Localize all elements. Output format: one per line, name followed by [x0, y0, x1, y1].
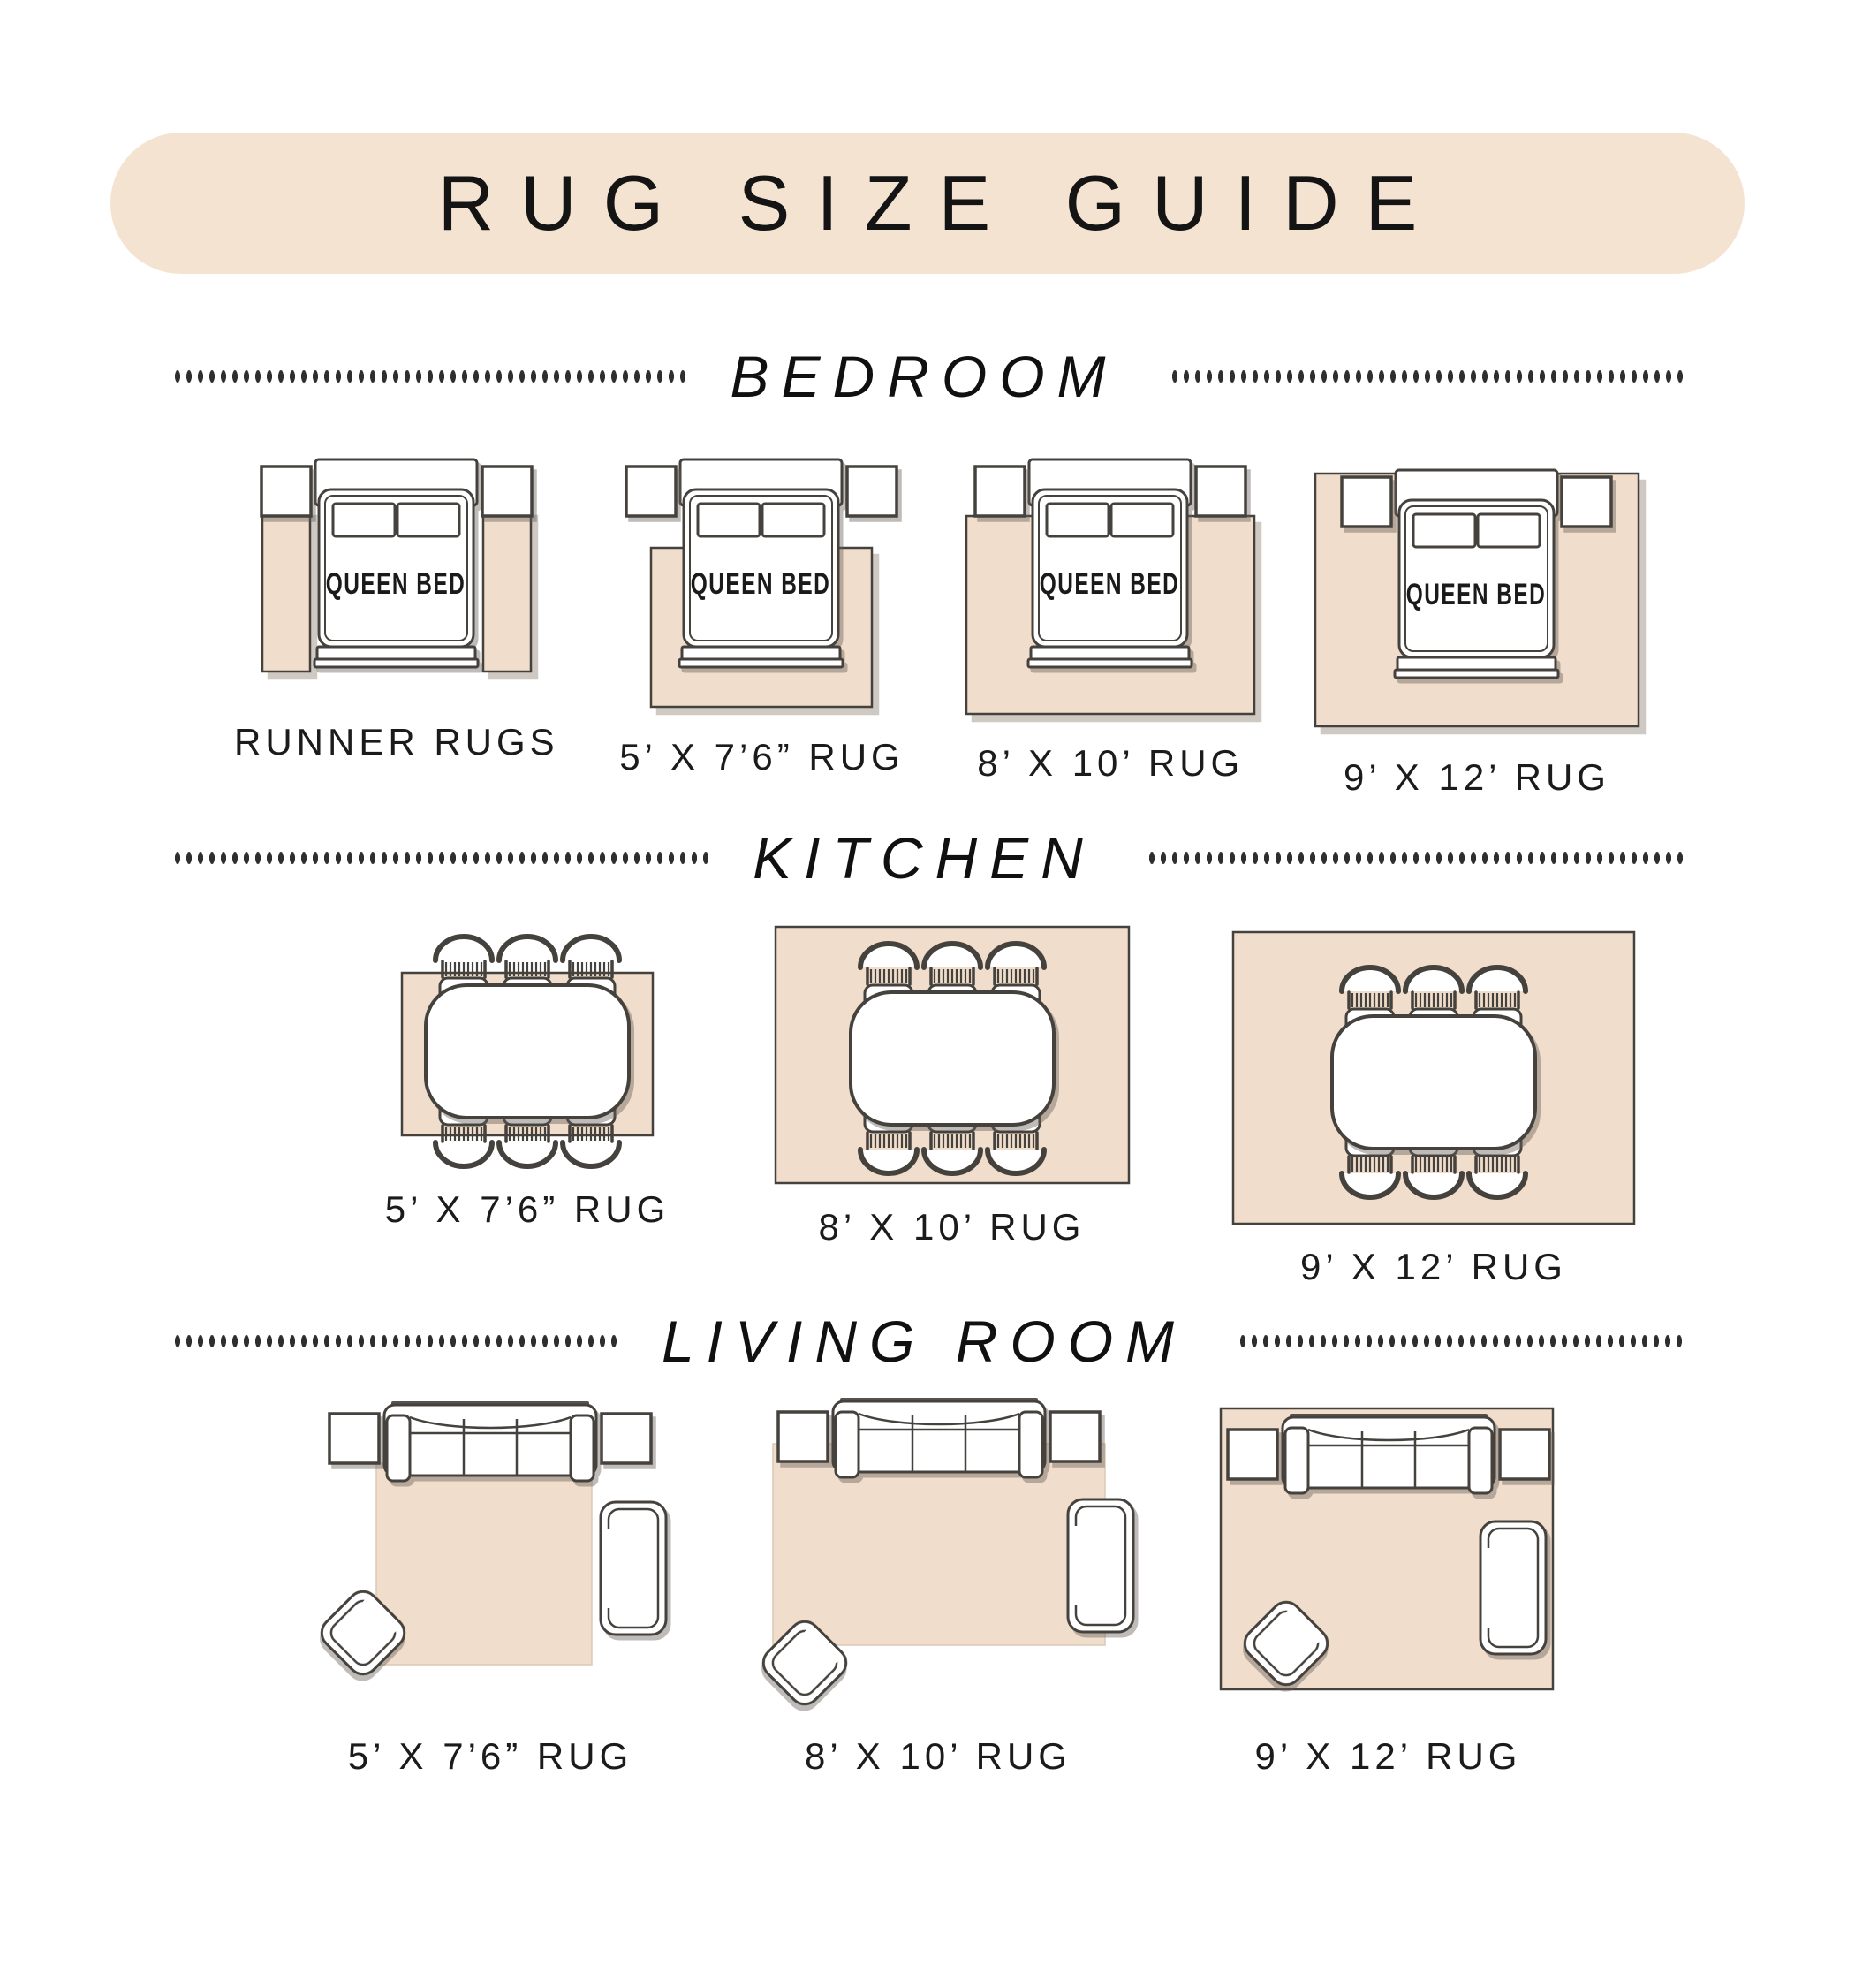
- end-table-icon: [602, 1414, 651, 1463]
- title-banner: RUG SIZE GUIDE: [110, 133, 1745, 274]
- rug: [773, 1444, 1105, 1645]
- end-table-icon: [329, 1414, 379, 1463]
- rug-size-label: 5’ X 7’6” RUG: [348, 1734, 633, 1780]
- rug-size-label: 8’ X 10’ RUG: [819, 1204, 1086, 1251]
- kitchen-diagram-row: 5’ X 7’6” RUG 8’ X 10’ RUG: [377, 923, 1641, 1291]
- nightstand-icon: [482, 467, 532, 516]
- nightstand-icon: [1342, 477, 1391, 527]
- rug-size-label: 8’ X 10’ RUG: [977, 740, 1244, 787]
- diagram-living-room-9x12: 9’ X 12’ RUG: [1187, 1398, 1589, 1780]
- section-header-living-room: LIVING ROOM: [172, 1308, 1683, 1375]
- rug-size-label: 5’ X 7’6” RUG: [385, 1187, 670, 1233]
- living-room-diagram-row: 5’ X 7’6” RUG 8’ X 10’ RUG 9’: [291, 1398, 1589, 1780]
- end-table-icon: [1500, 1430, 1549, 1479]
- rug-size-label: 9’ X 12’ RUG: [1344, 755, 1610, 801]
- diagram-bedroom-9x12: 9’ X 12’ RUG: [1314, 459, 1640, 801]
- chaise-chair-icon: [1480, 1521, 1546, 1654]
- nightstand-icon: [847, 467, 897, 516]
- diagram-living-room-8x10: 8’ X 10’ RUG: [738, 1398, 1139, 1780]
- dotted-divider-right: [1238, 1334, 1683, 1348]
- diagram-bedroom-runner-rugs: RUNNER RUGS: [234, 459, 559, 766]
- end-table-icon: [778, 1412, 828, 1461]
- chaise-chair-icon: [601, 1502, 666, 1635]
- nightstand-icon: [975, 467, 1025, 516]
- bedroom-9x12-illustration: [1314, 459, 1640, 732]
- dotted-divider-right: [1147, 851, 1683, 865]
- kitchen-5x76-illustration: [377, 923, 678, 1171]
- end-table-icon: [1050, 1412, 1100, 1461]
- nightstand-icon: [261, 467, 311, 516]
- queen-bed-icon: [1395, 470, 1558, 678]
- queen-bed-icon: [314, 459, 478, 667]
- section-title-bedroom: BEDROOM: [730, 343, 1124, 410]
- diagram-kitchen-9x12: 9’ X 12’ RUG: [1226, 923, 1641, 1291]
- dotted-divider-left: [172, 1334, 617, 1348]
- dining-table-icon: [851, 992, 1054, 1125]
- nightstand-icon: [626, 467, 676, 516]
- kitchen-9x12-illustration: [1226, 923, 1641, 1228]
- diagram-kitchen-5x76: 5’ X 7’6” RUG: [377, 923, 678, 1233]
- kitchen-8x10-illustration: [767, 923, 1138, 1188]
- bedroom-runner-illustration: [260, 459, 534, 696]
- sofa-icon: [833, 1398, 1045, 1477]
- section-living-room: LIVING ROOM 5’ X 7’6” RUG: [0, 1308, 1855, 1780]
- nightstand-icon: [1562, 477, 1611, 527]
- rug-size-label: 8’ X 10’ RUG: [805, 1734, 1071, 1780]
- page-title: RUG SIZE GUIDE: [412, 158, 1444, 248]
- rug-size-label: 9’ X 12’ RUG: [1300, 1244, 1567, 1291]
- living-room-8x10-illustration: [738, 1398, 1139, 1723]
- diagram-living-room-5x76: 5’ X 7’6” RUG: [291, 1398, 689, 1780]
- section-header-kitchen: KITCHEN: [172, 824, 1683, 892]
- queen-bed-icon: [679, 459, 843, 667]
- diagram-bedroom-5x76: 5’ X 7’6” RUG: [616, 459, 907, 781]
- runner-rug-left: [262, 509, 310, 672]
- end-table-icon: [1228, 1430, 1277, 1479]
- living-room-9x12-illustration: [1187, 1398, 1589, 1723]
- rug-size-label: RUNNER RUGS: [234, 719, 559, 766]
- bedroom-5x76-illustration: [616, 459, 907, 711]
- bedroom-8x10-illustration: [965, 459, 1256, 717]
- section-title-kitchen: KITCHEN: [753, 824, 1102, 892]
- diagram-kitchen-8x10: 8’ X 10’ RUG: [767, 923, 1138, 1251]
- diagram-bedroom-8x10: 8’ X 10’ RUG: [965, 459, 1256, 787]
- runner-rug-right: [483, 509, 531, 672]
- sofa-icon: [384, 1401, 596, 1481]
- dining-table-icon: [426, 985, 629, 1118]
- section-kitchen: KITCHEN 5’ X 7’6” RUG: [0, 824, 1855, 1291]
- section-bedroom: BEDROOM RUNNER RUGS: [0, 343, 1855, 801]
- living-room-5x76-illustration: [291, 1398, 689, 1723]
- dotted-divider-right: [1170, 369, 1683, 383]
- section-title-living-room: LIVING ROOM: [662, 1308, 1193, 1375]
- section-header-bedroom: BEDROOM: [172, 343, 1683, 410]
- rug-size-label: 5’ X 7’6” RUG: [619, 734, 905, 781]
- dining-table-icon: [1332, 1016, 1535, 1149]
- dotted-divider-left: [172, 851, 708, 865]
- rug-size-label: 9’ X 12’ RUG: [1255, 1734, 1522, 1780]
- rug: [376, 1463, 592, 1665]
- queen-bed-icon: [1028, 459, 1192, 667]
- chaise-chair-icon: [1068, 1499, 1133, 1632]
- sofa-icon: [1283, 1414, 1495, 1493]
- dotted-divider-left: [172, 369, 685, 383]
- nightstand-icon: [1196, 467, 1245, 516]
- bedroom-diagram-row: RUNNER RUGS 5’ X 7’6” RUG: [234, 459, 1640, 801]
